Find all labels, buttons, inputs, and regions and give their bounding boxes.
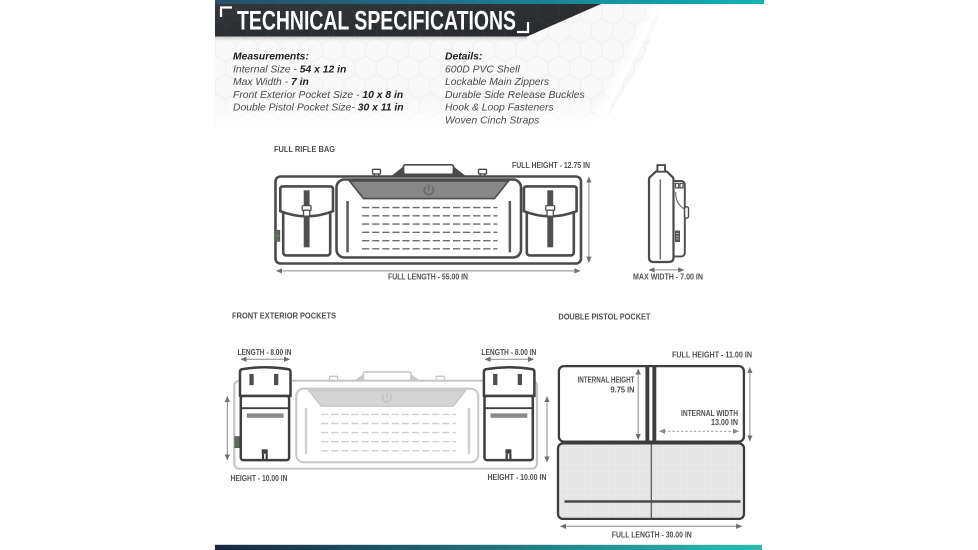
svg-text:Hook & Loop Fasteners: Hook & Loop Fasteners	[445, 103, 554, 114]
svg-text:13.00 IN: 13.00 IN	[711, 418, 738, 427]
svg-text:Max Width - 7 in: Max Width - 7 in	[233, 77, 309, 88]
svg-text:INTERNAL HEIGHT: INTERNAL HEIGHT	[578, 376, 635, 385]
svg-text:MAX WIDTH - 7.00 IN: MAX WIDTH - 7.00 IN	[633, 272, 703, 281]
svg-text:FRONT EXTERIOR POCKETS: FRONT EXTERIOR POCKETS	[232, 311, 336, 321]
svg-text:FULL LENGTH - 55.00 IN: FULL LENGTH - 55.00 IN	[388, 273, 468, 282]
svg-text:Details:: Details:	[445, 52, 482, 63]
svg-text:Measurements:: Measurements:	[233, 52, 309, 63]
svg-text:Double Pistol Pocket Size- 30: Double Pistol Pocket Size- 30 x 11 in	[233, 103, 404, 114]
svg-text:Front Exterior Pocket Size - 1: Front Exterior Pocket Size - 10 x 8 in	[233, 90, 403, 101]
svg-text:HEIGHT - 10.00 IN: HEIGHT - 10.00 IN	[488, 473, 547, 482]
svg-text:INTERNAL WIDTH: INTERNAL WIDTH	[681, 409, 738, 418]
svg-text:TECHNICAL SPECIFICATIONS: TECHNICAL SPECIFICATIONS	[237, 6, 516, 36]
svg-text:Internal Size - 54 x 12 in: Internal Size - 54 x 12 in	[233, 64, 346, 75]
svg-text:FULL LENGTH - 30.00 IN: FULL LENGTH - 30.00 IN	[612, 531, 692, 540]
svg-text:FULL HEIGHT - 11.00 IN: FULL HEIGHT - 11.00 IN	[672, 351, 752, 360]
svg-text:LENGTH - 8.00 IN: LENGTH - 8.00 IN	[238, 348, 292, 357]
svg-text:FULL HEIGHT - 12.75 IN: FULL HEIGHT - 12.75 IN	[512, 161, 590, 170]
svg-text:Lockable Main Zippers: Lockable Main Zippers	[445, 77, 549, 88]
svg-text:LENGTH - 8.00 IN: LENGTH - 8.00 IN	[481, 348, 536, 357]
svg-text:Woven Cinch Straps: Woven Cinch Straps	[445, 116, 539, 127]
svg-text:9.75 IN: 9.75 IN	[611, 385, 635, 394]
svg-text:600D PVC Shell: 600D PVC Shell	[445, 64, 520, 75]
svg-text:HEIGHT - 10.00 IN: HEIGHT - 10.00 IN	[231, 474, 288, 483]
svg-text:DOUBLE PISTOL POCKET: DOUBLE PISTOL POCKET	[558, 312, 651, 322]
svg-text:Durable Side Release Buckles: Durable Side Release Buckles	[445, 90, 585, 101]
svg-text:FULL RIFLE BAG: FULL RIFLE BAG	[274, 144, 335, 154]
